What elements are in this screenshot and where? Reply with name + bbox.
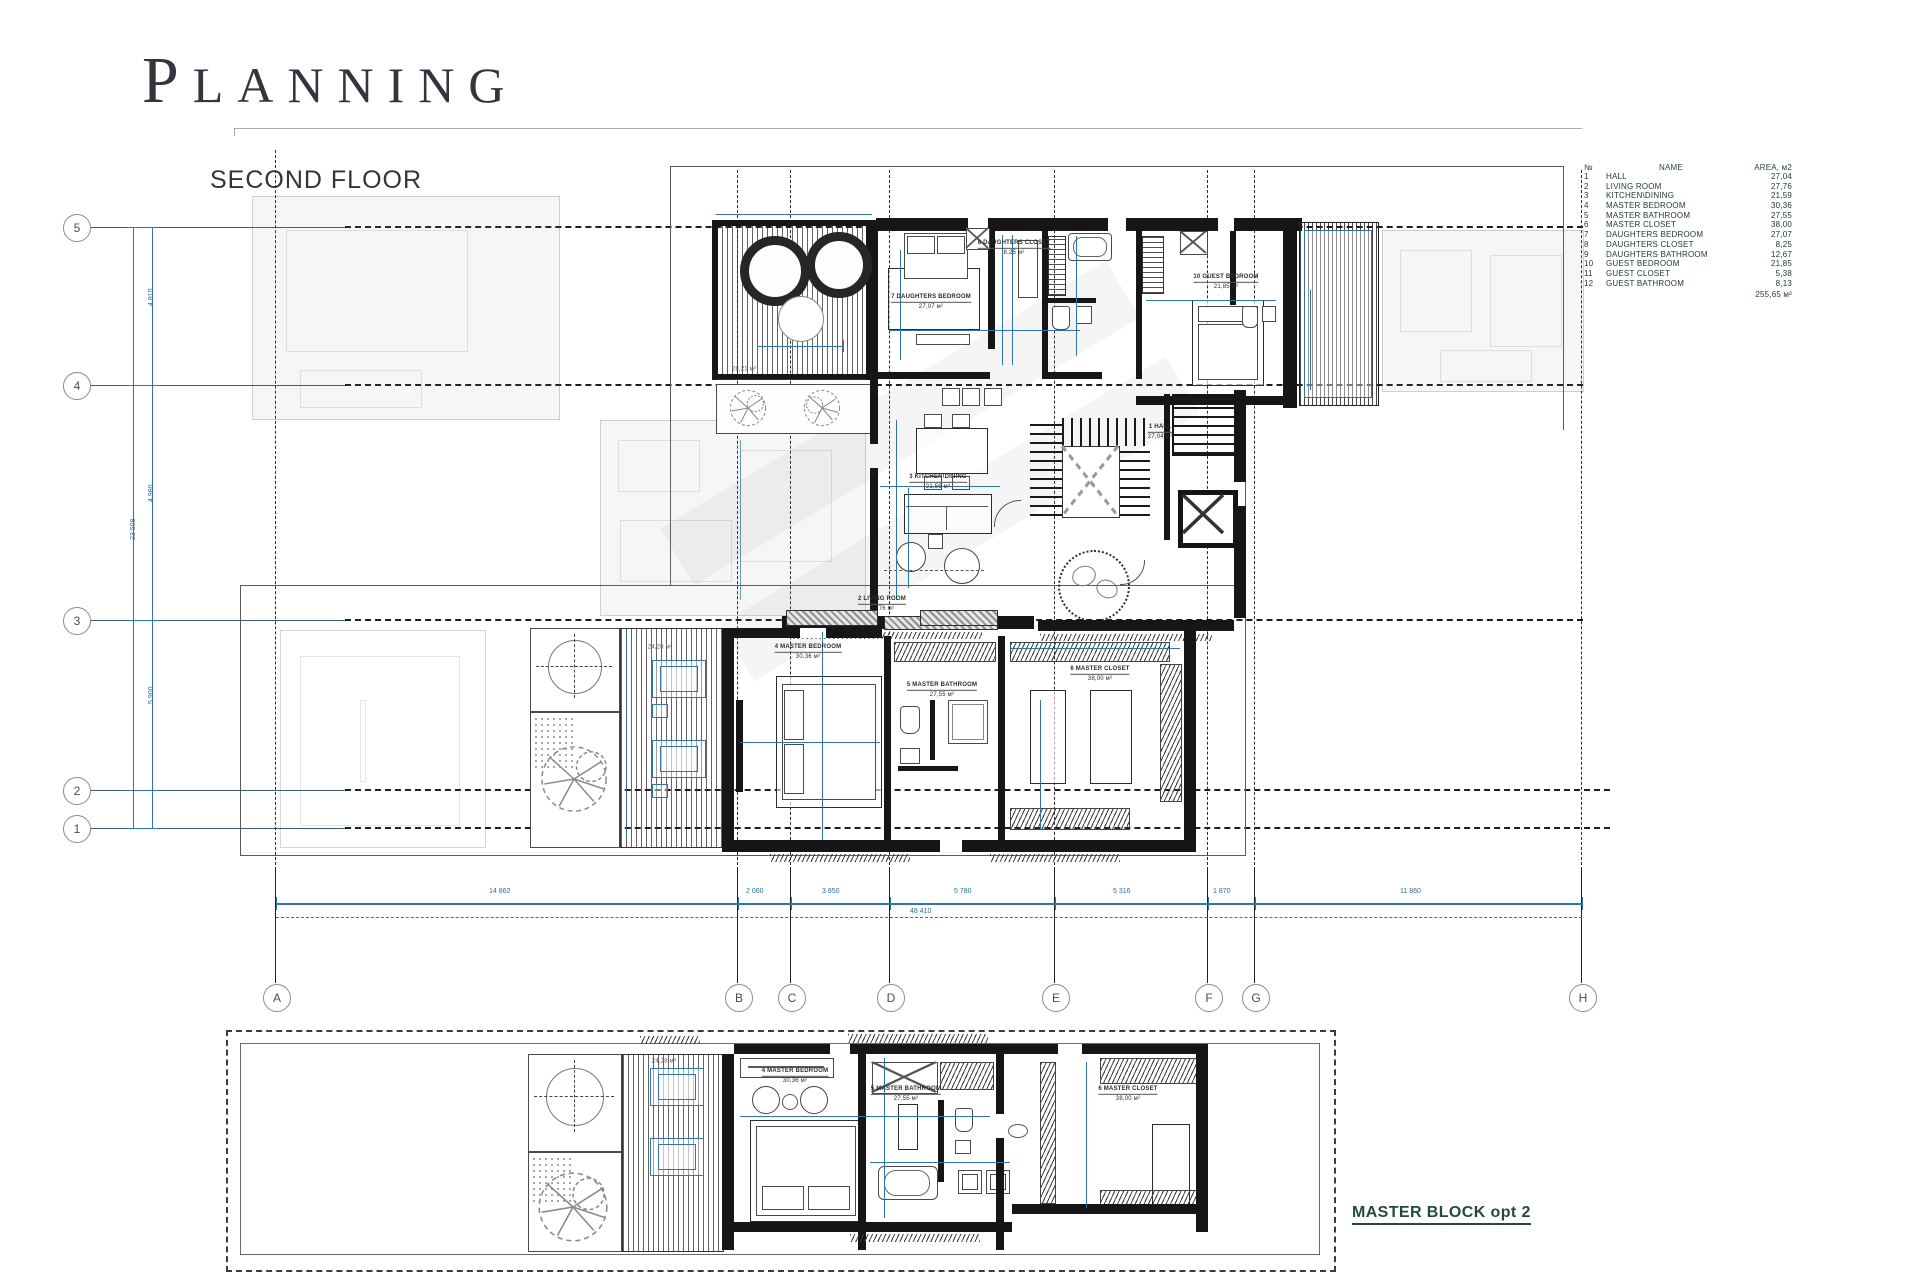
grid-stem <box>275 870 276 983</box>
circle-shape <box>1073 237 1107 257</box>
dimension-line <box>716 214 872 215</box>
drawing-element: 10 <box>1584 259 1606 269</box>
drawing-element: 8,25 <box>1736 240 1792 250</box>
wall-opening <box>1058 1044 1082 1054</box>
tv-wall <box>736 700 743 792</box>
drawing-figure <box>1180 231 1206 253</box>
drawing-element: 8,13 <box>1736 279 1792 289</box>
drawing-element: GUEST BEDROOM <box>1606 259 1736 269</box>
furniture-outline <box>658 1144 696 1170</box>
pillow <box>907 236 935 254</box>
drawing-element: 8 <box>1584 240 1606 250</box>
ghost-outline <box>360 700 366 782</box>
side-table <box>928 534 943 549</box>
legend-col-name: NAME <box>1606 163 1736 172</box>
wardrobe-hatch <box>1010 642 1170 662</box>
main-dimension-line <box>276 903 1582 905</box>
drawing-element: 11 <box>1584 269 1606 279</box>
room-legend-table: № NAME AREA, м2 1HALL27,042LIVING ROOM27… <box>1584 163 1792 299</box>
room-label: 4 MASTER BEDROOM30,36 м² <box>775 643 842 661</box>
wall-segment <box>1230 231 1236 305</box>
dimension-line <box>884 1058 885 1218</box>
drawing-element: MASTER CLOSET <box>1606 220 1736 230</box>
grid-dash-line <box>884 570 984 571</box>
drawing-figure <box>1183 495 1223 533</box>
wall-segment <box>1283 218 1297 408</box>
dimension-line <box>1086 1062 1087 1208</box>
outline-line <box>234 128 1582 129</box>
dimension-tick <box>1255 897 1256 910</box>
pillow <box>784 690 804 740</box>
wall-segment <box>722 628 734 848</box>
dimension-tick <box>738 897 739 910</box>
wardrobe-hatch <box>1010 808 1130 830</box>
legend-row: 1HALL27,04 <box>1584 172 1792 182</box>
drawing-element <box>1183 495 1223 533</box>
dimension-label: 5 316 <box>1113 888 1131 895</box>
grid-bubble-row-2: 2 <box>63 777 91 805</box>
drawing-element: 6 MASTER CLOSET <box>1070 666 1129 672</box>
dimension-tick <box>127 227 159 228</box>
chair <box>924 414 942 428</box>
closet-island <box>1090 690 1132 784</box>
drawing-element <box>804 390 839 425</box>
room-label: 1 HALL27,04 м² <box>1148 423 1172 441</box>
hatch-strip <box>848 1034 988 1043</box>
wardrobe-hatch <box>1100 1058 1202 1084</box>
grid-stem <box>1581 870 1582 983</box>
drawing-element <box>1180 231 1206 253</box>
dimension-line <box>757 340 758 352</box>
legend-col-area: AREA, м2 <box>1736 163 1792 172</box>
drawing-element: 6 MASTER CLOSET <box>1098 1086 1157 1092</box>
pillow <box>808 1186 850 1210</box>
area-label: 24,28 м² <box>652 1058 676 1067</box>
sink-icon <box>900 748 920 764</box>
linen-closet <box>1142 236 1164 294</box>
drawing-element: 5 MASTER BATHROOM <box>907 682 977 688</box>
room-label: 4 MASTER BEDROOM30,36 м² <box>762 1067 829 1085</box>
drawing-element: 8 DAUGHTERS CLOSET <box>978 240 1051 246</box>
grid-bubble-col-H: H <box>1569 984 1597 1012</box>
dimension-label: 4 810 <box>148 288 155 306</box>
overall-dimension-line <box>276 917 1582 918</box>
drawing-element: 4 MASTER BEDROOM <box>775 644 842 650</box>
wall-segment <box>866 220 878 380</box>
furniture-outline <box>660 746 698 772</box>
wall-segment <box>734 1044 1208 1054</box>
legend-row: 2LIVING ROOM27,76 <box>1584 182 1792 192</box>
furniture-outline <box>1304 230 1372 398</box>
armchair <box>800 1086 828 1114</box>
ghost-outline <box>1440 350 1532 382</box>
drawing-element: DAUGHTERS CLOSET <box>1606 240 1736 250</box>
drawing-element <box>542 1184 604 1236</box>
drawing-element <box>732 396 761 422</box>
dimension-label: 11 860 <box>1400 888 1421 895</box>
dimension-tick <box>127 385 159 386</box>
dimension-label: 5 780 <box>954 888 972 895</box>
toilet-icon <box>900 706 920 734</box>
dimension-line <box>740 742 880 743</box>
drawing-element: 5 MASTER BATHROOM <box>871 1086 941 1092</box>
drawing-element: 21,85 <box>1736 259 1792 269</box>
hatch-strip <box>770 854 910 862</box>
outline-line <box>234 128 235 136</box>
dimension-line <box>1040 700 1041 830</box>
chair <box>952 414 970 428</box>
drawing-element: 21,59 <box>1736 191 1792 201</box>
dimension-line <box>740 1116 990 1117</box>
dimension-label: 5 900 <box>148 686 155 704</box>
drawing-element: 4 MASTER BEDROOM <box>762 1068 829 1074</box>
wall-segment <box>898 766 958 771</box>
mattress <box>1198 324 1258 380</box>
legend-row: 9DAUGHTERS BATHROOM12,67 <box>1584 250 1792 260</box>
fixture-outline <box>984 388 1002 406</box>
wall-segment <box>1038 620 1234 631</box>
drawing-element: 12,67 <box>1736 250 1792 260</box>
floor-plan-sheet: P LANNING SECOND FLOOR № NAME AREA, м2 1… <box>0 0 1920 1280</box>
drawing-shape <box>962 1174 978 1190</box>
drawing-element: 2 <box>1584 182 1606 192</box>
drawing-element: 38,00 м² <box>1098 1094 1157 1104</box>
tree-planter-icon <box>806 232 872 298</box>
hatch-strip <box>990 854 1120 862</box>
dimension-label: 3 650 <box>822 888 840 895</box>
furniture-outline <box>658 1074 696 1100</box>
spa-tub-icon <box>548 640 602 694</box>
drawing-element <box>730 390 765 425</box>
drawing-element: 27,76 м² <box>858 604 906 614</box>
grid-stem <box>737 870 738 983</box>
wall-segment <box>1042 372 1102 379</box>
drawing-element: 8,25 м² <box>978 248 1051 258</box>
room-label: 5 MASTER BATHROOM27,55 м² <box>871 1085 941 1103</box>
drawing-element: MASTER BEDROOM <box>1606 201 1736 211</box>
grid-bubble-row-1: 1 <box>63 815 91 843</box>
legend-row: 8DAUGHTERS CLOSET8,25 <box>1584 240 1792 250</box>
staircase <box>1030 418 1062 516</box>
drawing-element: 10 GUEST BEDROOM <box>1193 274 1258 280</box>
grid-bubble-row-5: 5 <box>63 214 91 242</box>
armchair <box>752 1086 780 1114</box>
dimension-label: 2 060 <box>746 888 764 895</box>
sink-icon <box>1008 1124 1028 1138</box>
dimension-tick <box>127 828 159 829</box>
dimension-line <box>757 346 843 347</box>
drawing-element: 4 <box>1584 201 1606 211</box>
grid-bubble-col-E: E <box>1042 984 1070 1012</box>
wall-segment <box>996 1138 1004 1250</box>
wall-segment <box>876 372 990 379</box>
fixture-outline <box>942 388 960 406</box>
legend-row: 7DAUGHTERS BEDROOM27,07 <box>1584 230 1792 240</box>
wall-segment <box>1046 298 1096 303</box>
ghost-outline <box>1400 250 1472 332</box>
legend-row: 4MASTER BEDROOM30,36 <box>1584 201 1792 211</box>
dimension-line <box>1310 290 1311 390</box>
bench <box>916 334 970 345</box>
wall-opening <box>830 1044 850 1054</box>
wall-segment <box>712 220 718 380</box>
fixture-outline <box>962 388 980 406</box>
grid-stem <box>1254 870 1255 983</box>
drawing-element: 21,59 м² <box>909 482 967 492</box>
drawing-element: 9 <box>1584 250 1606 260</box>
drawing-element: 12 <box>1584 279 1606 289</box>
dimension-line <box>890 330 1080 331</box>
dimension-line <box>740 440 741 600</box>
grid-bubble-col-F: F <box>1195 984 1223 1012</box>
sofa <box>904 494 992 534</box>
grid-stem <box>1207 870 1208 983</box>
page-title-rest: LANNING <box>193 60 519 110</box>
section-hatch <box>920 610 998 626</box>
drawing-element <box>542 747 606 811</box>
grid-bubble-row-3: 3 <box>63 607 91 635</box>
drawing-element <box>1062 446 1118 516</box>
drawing-element: 30,36 м² <box>775 652 842 662</box>
drawing-shape <box>574 634 575 698</box>
drawing-element: 30,36 м² <box>762 1076 829 1086</box>
dimension-line <box>908 488 909 588</box>
drawing-element: 5 <box>1584 211 1606 221</box>
wall-segment <box>712 220 876 226</box>
foliage-icon <box>534 742 614 816</box>
drawing-element: GUEST CLOSET <box>1606 269 1736 279</box>
side-table <box>652 704 668 718</box>
wall-segment <box>1234 506 1246 618</box>
dimension-line <box>870 1162 1010 1163</box>
grid-bubble-col-A: A <box>263 984 291 1012</box>
drawing-element: 30,36 <box>1736 201 1792 211</box>
dimension-line <box>1010 648 1180 649</box>
drawing-element <box>576 752 606 782</box>
dimension-tick <box>1582 897 1583 910</box>
wardrobe-hatch <box>1040 1062 1056 1204</box>
dimension-label: 1 870 <box>1213 888 1231 895</box>
dimension-line <box>626 634 627 840</box>
wardrobe-hatch <box>940 1062 994 1090</box>
hatch-strip <box>640 1036 700 1044</box>
dimension-tick <box>276 897 277 910</box>
circle-shape <box>884 1170 930 1196</box>
wall-segment <box>998 636 1005 846</box>
drawing-element: 27,07 м² <box>891 302 971 312</box>
wall-segment <box>996 1054 1004 1114</box>
ghost-outline <box>300 656 460 826</box>
left-dimension-line <box>152 227 153 828</box>
dimension-label: 14 862 <box>489 888 510 895</box>
wall-opening <box>1218 218 1234 231</box>
drawing-element <box>809 396 838 422</box>
area-label: 24,28 м² <box>648 644 672 653</box>
room-label: 10 GUEST BEDROOM21,85 м² <box>1193 273 1258 291</box>
armchair <box>896 542 926 572</box>
grid-bubble-col-C: C <box>778 984 806 1012</box>
page-title: P LANNING <box>142 48 518 114</box>
wall-segment <box>998 616 1034 629</box>
dimension-line <box>822 632 823 844</box>
grid-bubble-col-B: B <box>725 984 753 1012</box>
pillow <box>762 1186 804 1210</box>
round-table-icon <box>782 1094 798 1110</box>
drawing-element: 38,00 <box>1736 220 1792 230</box>
sink-icon <box>1076 306 1092 324</box>
toilet-icon <box>1242 306 1258 328</box>
dimension-line <box>896 420 897 600</box>
outline-line <box>946 506 947 530</box>
drawing-element: 27,04 м² <box>1148 432 1172 442</box>
outline-line <box>670 166 1563 167</box>
foliage-icon <box>722 386 774 430</box>
dimension-tick <box>890 897 891 910</box>
drawing-element: 6 <box>1584 220 1606 230</box>
outline-line <box>906 506 988 507</box>
toilet-icon <box>955 1108 973 1132</box>
wall-segment <box>870 378 878 444</box>
dimension-tick <box>127 620 159 621</box>
drawing-element: 1 HALL <box>1149 424 1171 430</box>
legend-row: 12GUEST BATHROOM8,13 <box>1584 279 1792 289</box>
drawing-element: 27,55 м² <box>871 1094 941 1104</box>
room-label: 8 DAUGHTERS CLOSET8,25 м² <box>978 239 1051 257</box>
wall-segment <box>722 1222 1012 1232</box>
drawing-element: 27,55 м² <box>907 690 977 700</box>
vanity <box>898 1104 918 1150</box>
wall-segment <box>1234 390 1246 482</box>
legend-header: № NAME AREA, м2 <box>1584 163 1792 172</box>
door-swing <box>1120 560 1145 585</box>
foliage-icon <box>532 1168 614 1246</box>
overall-dimension-label: 23 508 <box>130 519 137 540</box>
wall-segment <box>884 636 891 846</box>
wall-segment <box>1164 394 1170 540</box>
room-label: 2 LIVING ROOM27,76 м² <box>858 595 906 613</box>
room-label: 3 KITCHEN\DINING21,59 м² <box>909 473 967 491</box>
legend-row: 10GUEST BEDROOM21,85 <box>1584 259 1792 269</box>
drawing-element: 2 LIVING ROOM <box>858 596 906 602</box>
grid-stem <box>889 870 890 983</box>
drawing-element: MASTER BATHROOM <box>1606 211 1736 221</box>
dimension-line <box>1146 300 1276 301</box>
master-block-label: MASTER BLOCK opt 2 <box>1352 1204 1531 1225</box>
round-table-icon <box>778 296 824 342</box>
legend-rows: 1HALL27,042LIVING ROOM27,763KITCHEN\DINI… <box>1584 172 1792 288</box>
drawing-element: 3 <box>1584 191 1606 201</box>
wall-segment <box>858 1054 866 1250</box>
drawing-element: 27,04 <box>1736 172 1792 182</box>
outline-line <box>240 585 241 855</box>
side-table <box>652 784 668 798</box>
drawing-element: 7 <box>1584 230 1606 240</box>
ghost-outline <box>1490 255 1562 347</box>
legend-row: 11GUEST CLOSET5,38 <box>1584 269 1792 279</box>
wall-segment <box>938 1100 944 1182</box>
stair-treads <box>1118 446 1150 516</box>
grid-stem <box>1054 870 1055 983</box>
wall-opening <box>940 840 962 852</box>
legend-row: 6MASTER CLOSET38,00 <box>1584 220 1792 230</box>
wall-segment <box>712 374 876 379</box>
drawing-element <box>539 1173 607 1241</box>
drawing-element: KITCHEN\DINING <box>1606 191 1736 201</box>
room-label: 6 MASTER CLOSET38,00 м² <box>1070 665 1129 683</box>
drawing-element: 27,76 <box>1736 182 1792 192</box>
dimension-line <box>1076 236 1077 356</box>
grid-bubble-col-G: G <box>1242 984 1270 1012</box>
drawing-element: 38,00 м² <box>1070 674 1129 684</box>
wall-opening <box>1108 218 1126 231</box>
drawing-element: GUEST BATHROOM <box>1606 279 1736 289</box>
drawing-shape <box>574 1060 575 1132</box>
wall-segment <box>1184 628 1196 848</box>
wardrobe-hatch <box>894 642 996 662</box>
wall-segment <box>930 700 935 760</box>
legend-row: 5MASTER BATHROOM27,55 <box>1584 211 1792 221</box>
drawing-element: 3 KITCHEN\DINING <box>909 474 967 480</box>
dimension-tick <box>1055 897 1056 910</box>
ghost-outline <box>300 370 422 408</box>
drawing-figure <box>1062 446 1118 516</box>
armchair <box>944 548 980 584</box>
service-stair <box>1172 394 1236 456</box>
room-label: 7 DAUGHTERS BEDROOM27,07 м² <box>891 293 971 311</box>
drawing-element: DAUGHTERS BEDROOM <box>1606 230 1736 240</box>
drawing-element: DAUGHTERS BATHROOM <box>1606 250 1736 260</box>
drawing-element: 1 <box>1584 172 1606 182</box>
sink-icon <box>1262 306 1276 322</box>
dimension-tick <box>791 897 792 910</box>
drawing-element: HALL <box>1606 172 1736 182</box>
drawing-element: 21,85 м² <box>1193 282 1258 292</box>
dimension-line <box>843 340 844 352</box>
furniture-outline <box>660 666 698 692</box>
overall-dimension-label: 48 410 <box>910 908 931 915</box>
ghost-outline <box>618 440 700 492</box>
dimension-label: 4 980 <box>148 484 155 502</box>
dining-table <box>916 428 988 474</box>
drawing-element: 27,07 <box>1736 230 1792 240</box>
area-label: 28,21 м² <box>732 366 756 375</box>
grid-bubble-row-4: 4 <box>63 372 91 400</box>
closet-island <box>1030 690 1066 784</box>
pillow <box>937 236 965 254</box>
drawing-element: 5,38 <box>1736 269 1792 279</box>
drawing-element: LIVING ROOM <box>1606 182 1736 192</box>
drawing-element: 27,55 <box>1736 211 1792 221</box>
legend-col-num: № <box>1584 163 1606 172</box>
legend-total: 255,65 м² <box>1584 290 1792 299</box>
room-label: 5 MASTER BATHROOM27,55 м² <box>907 681 977 699</box>
dimension-tick <box>1208 897 1209 910</box>
foliage-icon <box>796 386 848 430</box>
spa-tub-icon <box>546 1068 604 1126</box>
room-label: 6 MASTER CLOSET38,00 м² <box>1098 1085 1157 1103</box>
dimension-tick <box>127 790 159 791</box>
toilet-icon <box>1052 306 1070 330</box>
grid-stem <box>790 870 791 983</box>
drawing-shape <box>952 704 984 740</box>
hatch-strip <box>850 1234 980 1242</box>
sink-icon <box>955 1140 971 1154</box>
legend-row: 3KITCHEN\DINING21,59 <box>1584 191 1792 201</box>
ghost-outline <box>286 230 468 352</box>
page-title-initial: P <box>142 48 193 114</box>
wardrobe-hatch <box>1160 664 1182 802</box>
wall-segment <box>722 1054 734 1250</box>
